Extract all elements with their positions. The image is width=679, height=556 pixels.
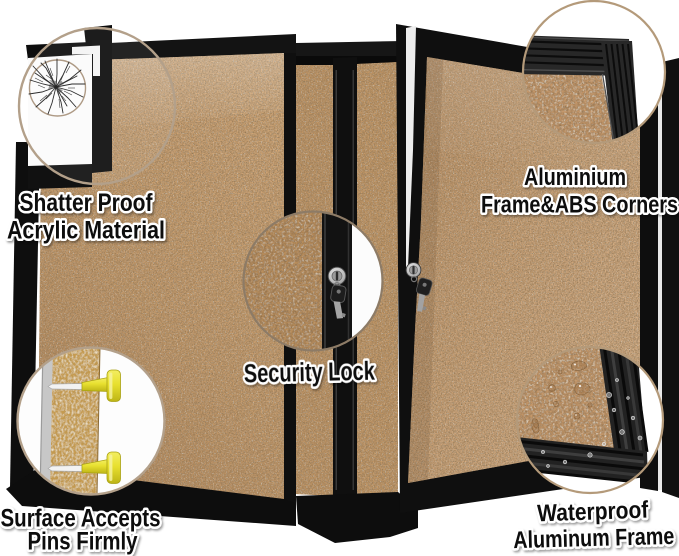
svg-text:Aluminium: Aluminium [524,164,626,191]
svg-text:Frame&ABS Corners: Frame&ABS Corners [481,192,678,219]
svg-text:Pins Firmly: Pins Firmly [28,528,138,556]
svg-text:Acrylic Material: Acrylic Material [7,217,165,245]
svg-text:Aluminum Frame: Aluminum Frame [513,523,675,554]
svg-text:Waterproof: Waterproof [537,497,650,528]
svg-text:Security Lock: Security Lock [244,358,376,389]
svg-text:Shatter Proof: Shatter Proof [20,189,154,217]
